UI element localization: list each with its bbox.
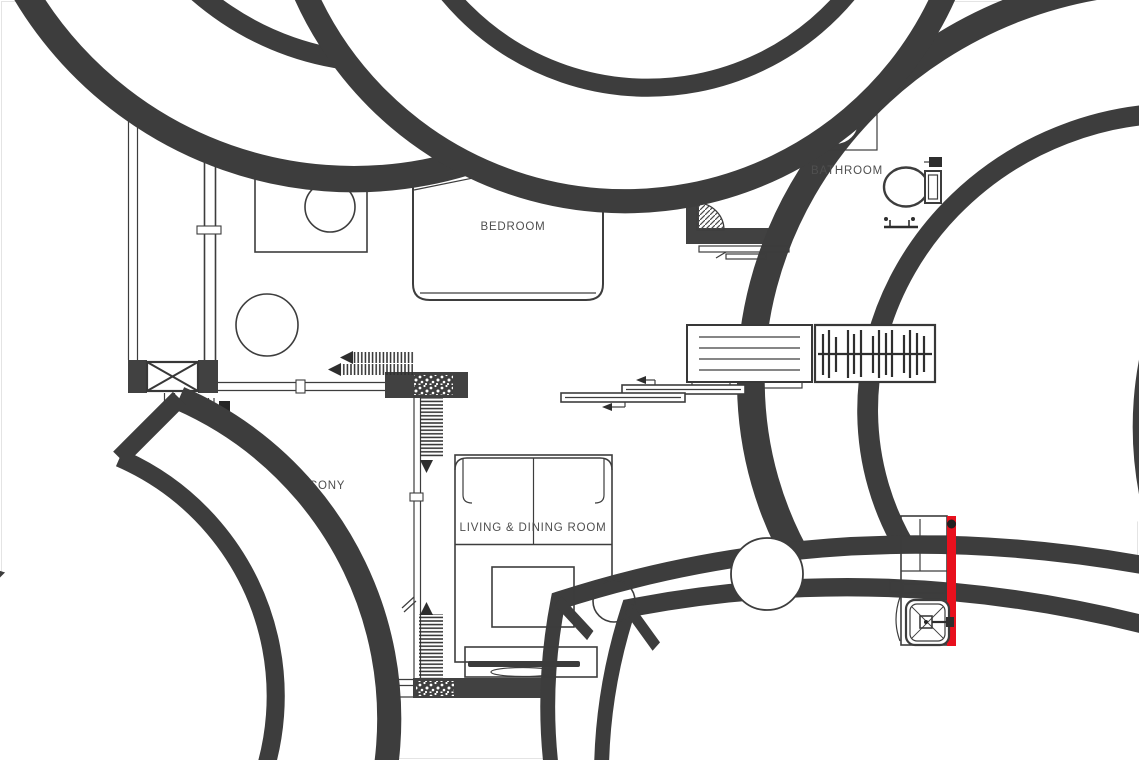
floor-plan-drawing: BEDROOM SHOWER xyxy=(0,0,1139,760)
hall-storage xyxy=(687,325,935,388)
dining-chair-icon xyxy=(0,381,534,760)
tv-icon xyxy=(468,661,580,667)
balcony-window xyxy=(218,380,386,393)
kitchen-sink-icon xyxy=(906,600,954,645)
wall-patch xyxy=(414,375,453,395)
column-x-left xyxy=(128,360,218,393)
dining-table-icon xyxy=(731,538,803,610)
window-mullion xyxy=(197,226,221,234)
room-label-bathroom: BATHROOM xyxy=(811,165,883,177)
room-label-living-dining: LIVING & DINING ROOM xyxy=(460,522,607,534)
curtain-icon xyxy=(419,602,443,678)
room-label-bedroom: BEDROOM xyxy=(480,221,545,233)
curtain-icon xyxy=(420,398,443,473)
curtain-icon xyxy=(328,351,414,376)
pillow-icon xyxy=(590,573,1139,760)
door-swing-icon xyxy=(697,203,724,230)
floor-plan-canvas: BEDROOM SHOWER xyxy=(0,0,1139,760)
dresser-icon xyxy=(687,325,812,388)
round-table-icon xyxy=(236,294,298,356)
wardrobe-hangers-icon xyxy=(815,325,935,382)
accent-dot xyxy=(947,520,956,529)
wall-patch xyxy=(416,681,454,696)
